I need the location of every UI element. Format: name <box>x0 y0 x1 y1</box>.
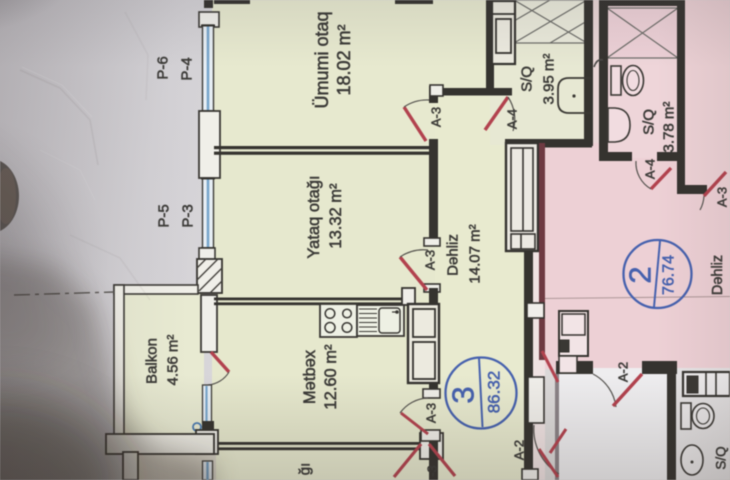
svg-text:12.60 m²: 12.60 m² <box>322 344 340 410</box>
svg-text:Dəhliz: Dəhliz <box>710 255 726 295</box>
svg-text:A-3: A-3 <box>424 403 439 423</box>
svg-text:-3: -3 <box>425 465 440 477</box>
svg-text:P-5: P-5 <box>156 204 173 227</box>
svg-text:2: 2 <box>623 266 658 283</box>
svg-text:ğı: ğı <box>297 463 314 476</box>
svg-text:P-4: P-4 <box>179 57 196 80</box>
svg-text:Balkon: Balkon <box>144 338 161 384</box>
svg-text:A-4: A-4 <box>643 159 658 179</box>
svg-text:A-2: A-2 <box>616 362 631 382</box>
svg-text:S/Q: S/Q <box>714 446 729 469</box>
svg-text:A-2: A-2 <box>512 440 527 460</box>
svg-text:14.07 m²: 14.07 m² <box>467 224 484 283</box>
svg-text:Mətbəx: Mətbəx <box>301 349 319 404</box>
svg-text:A-3: A-3 <box>715 187 730 207</box>
svg-text:Yataq otağı: Yataq otağı <box>305 175 323 258</box>
svg-text:Dəhliz: Dəhliz <box>445 234 462 276</box>
svg-text:3.95 m²: 3.95 m² <box>541 54 558 105</box>
svg-text:A-4: A-4 <box>505 109 520 129</box>
svg-text:13.32 m²: 13.32 m² <box>327 183 345 249</box>
svg-text:18.02 m²: 18.02 m² <box>334 24 354 95</box>
svg-text:S/Q: S/Q <box>641 109 658 135</box>
svg-text:3: 3 <box>446 386 481 403</box>
svg-text:76.74: 76.74 <box>661 255 678 295</box>
svg-text:3.78 m²: 3.78 m² <box>661 102 678 153</box>
svg-text:Ümumi otaq: Ümumi otaq <box>312 11 332 108</box>
svg-text:A-3: A-3 <box>423 250 438 270</box>
svg-text:4.56 m²: 4.56 m² <box>165 335 182 386</box>
svg-text:P-6: P-6 <box>155 56 172 79</box>
svg-text:S/Q: S/Q <box>519 66 536 92</box>
svg-text:86.32: 86.32 <box>485 371 504 414</box>
svg-text:A-3: A-3 <box>429 107 444 127</box>
svg-text:P-3: P-3 <box>180 204 197 227</box>
